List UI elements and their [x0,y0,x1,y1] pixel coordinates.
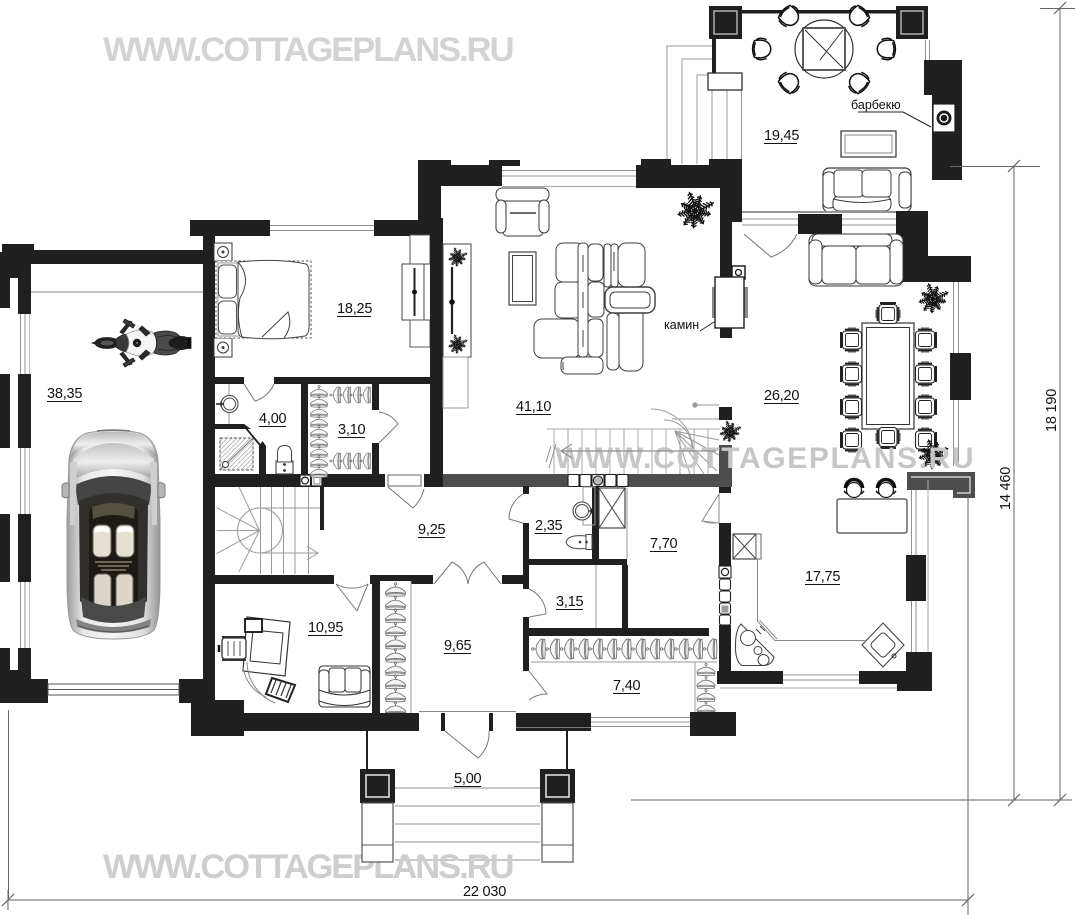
svg-text:17,75: 17,75 [805,569,840,585]
svg-text:3,15: 3,15 [556,594,584,610]
svg-text:7,70: 7,70 [650,536,678,552]
svg-text:4,00: 4,00 [259,411,287,427]
svg-text:18,25: 18,25 [337,301,372,317]
svg-text:7,40: 7,40 [613,678,641,694]
svg-text:26,20: 26,20 [764,388,799,404]
svg-text:19,45: 19,45 [764,128,799,144]
svg-text:10,95: 10,95 [308,620,343,636]
svg-text:WWW.COTTAGEPLANS.RU: WWW.COTTAGEPLANS.RU [103,848,516,886]
svg-text:41,10: 41,10 [516,399,551,415]
svg-text:барбекю: барбекю [851,98,901,112]
svg-text:5,00: 5,00 [454,771,482,787]
svg-text:3,10: 3,10 [338,422,366,438]
svg-text:14 460: 14 460 [998,467,1014,510]
svg-text:камин: камин [664,318,699,332]
svg-text:WWW.COTTAGEPLANS.RU: WWW.COTTAGEPLANS.RU [555,442,975,475]
svg-text:2,35: 2,35 [535,518,563,534]
svg-text:38,35: 38,35 [47,386,82,402]
svg-text:9,65: 9,65 [444,638,472,654]
svg-text:WWW.COTTAGEPLANS.RU: WWW.COTTAGEPLANS.RU [103,31,516,69]
svg-text:22 030: 22 030 [463,884,506,900]
svg-text:18 190: 18 190 [1044,389,1060,432]
svg-text:9,25: 9,25 [418,522,446,538]
